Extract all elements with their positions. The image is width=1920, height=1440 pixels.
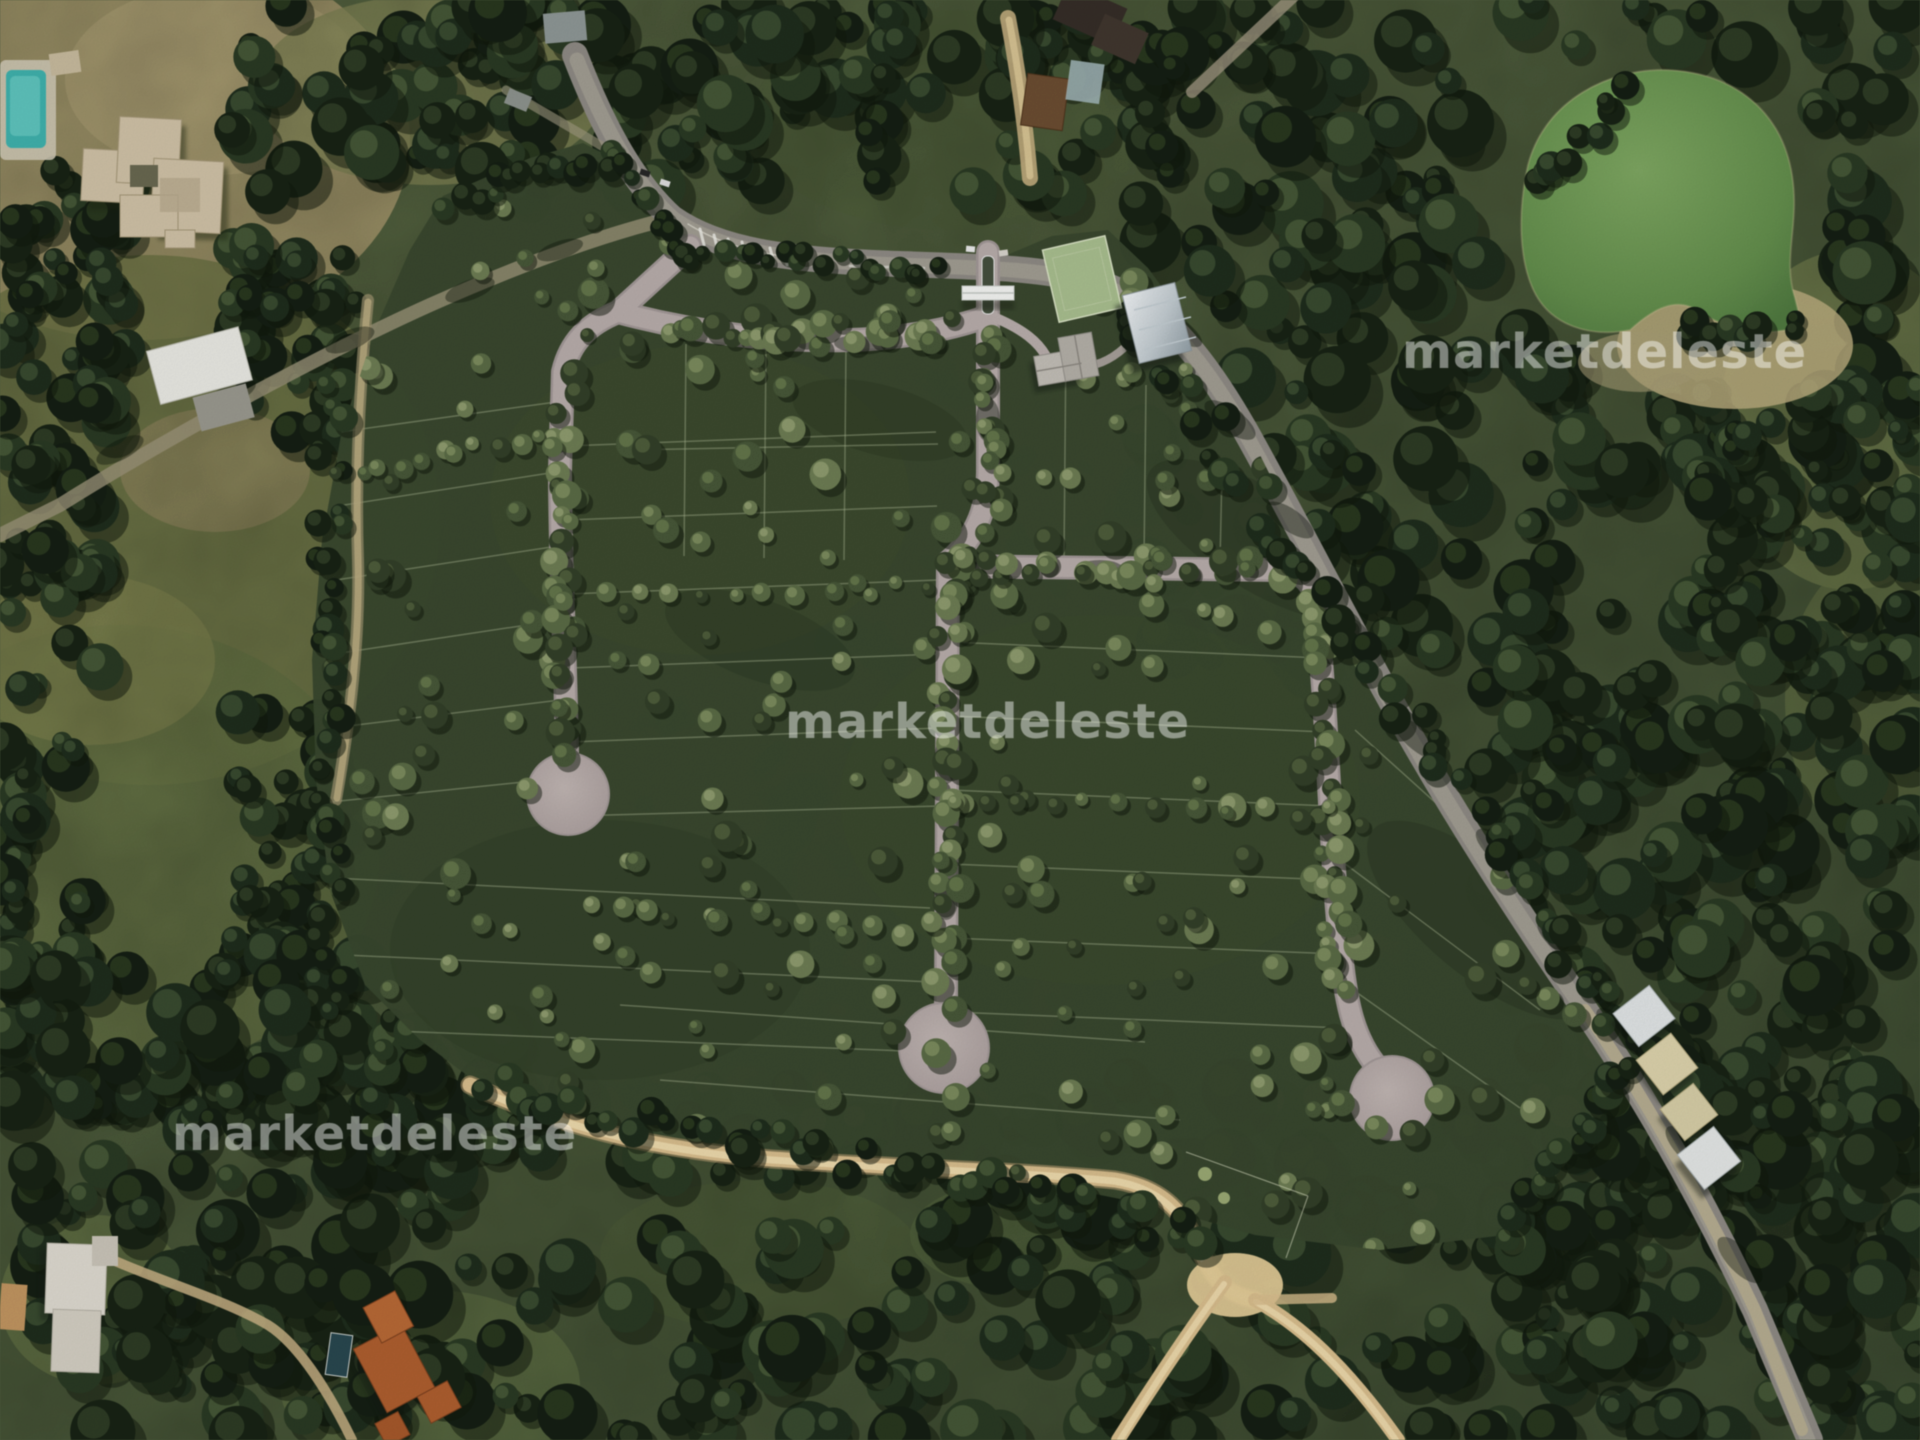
aerial-photo: marketdeleste marketdeleste marketdelest… [0,0,1920,1440]
watermark: marketdeleste [1402,324,1807,380]
watermark: marketdeleste [785,694,1190,750]
watermark: marketdeleste [172,1106,577,1162]
satellite-map: marketdeleste marketdeleste marketdelest… [0,0,1920,1440]
